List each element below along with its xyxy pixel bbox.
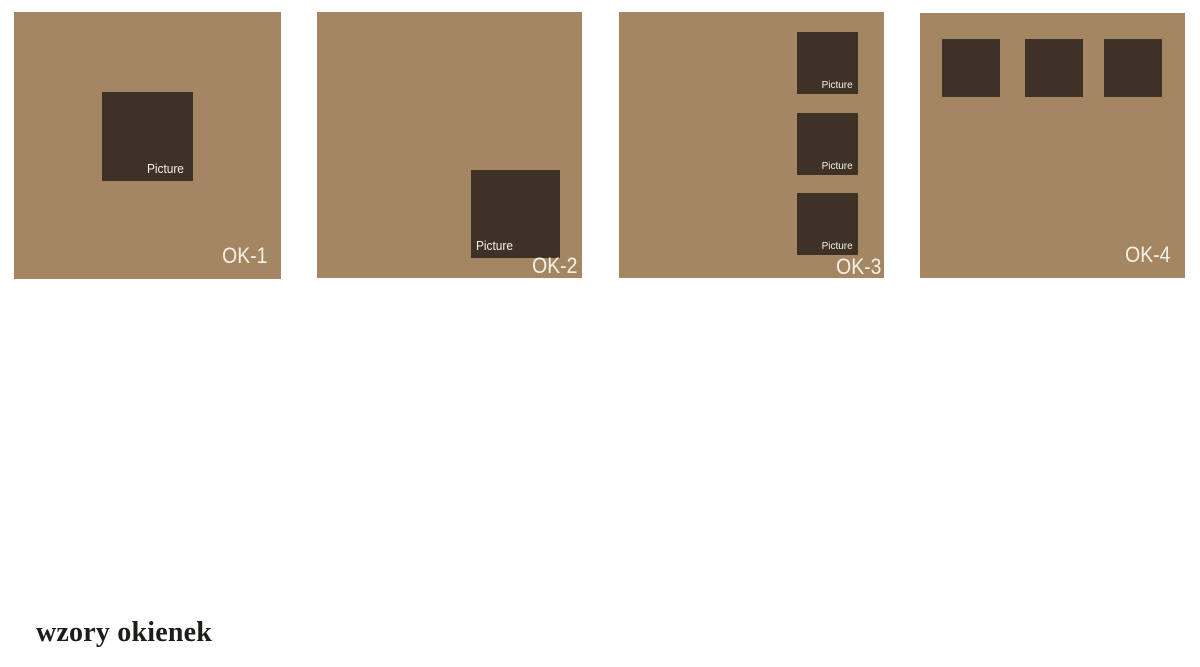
- picture-placeholder: Picture: [797, 193, 858, 255]
- picture-placeholder: [1104, 39, 1162, 97]
- page-title: wzory okienek: [36, 617, 212, 649]
- picture-placeholder-label: Picture: [476, 240, 513, 253]
- picture-placeholder: Picture: [797, 113, 858, 175]
- picture-placeholder: Picture: [102, 92, 193, 181]
- window-pattern-panel-ok-4: OK-4: [920, 13, 1185, 278]
- picture-placeholder-label: Picture: [822, 241, 853, 252]
- window-pattern-panel-ok-3: Picture Picture Picture OK-3: [619, 12, 884, 278]
- panel-label-ok-1: OK-1: [222, 245, 267, 267]
- panel-label-ok-4: OK-4: [1125, 244, 1170, 266]
- picture-placeholder: Picture: [797, 32, 858, 94]
- window-pattern-panel-ok-2: Picture OK-2: [317, 12, 582, 278]
- panel-label-ok-2: OK-2: [532, 255, 577, 277]
- picture-placeholder: Picture: [471, 170, 560, 258]
- picture-placeholder-label: Picture: [822, 161, 853, 172]
- window-pattern-panel-ok-1: Picture OK-1: [14, 12, 281, 279]
- panel-label-ok-3: OK-3: [836, 256, 881, 278]
- picture-placeholder: [1025, 39, 1083, 97]
- picture-placeholder-label: Picture: [147, 163, 184, 176]
- picture-placeholder-label: Picture: [822, 80, 853, 91]
- picture-placeholder: [942, 39, 1000, 97]
